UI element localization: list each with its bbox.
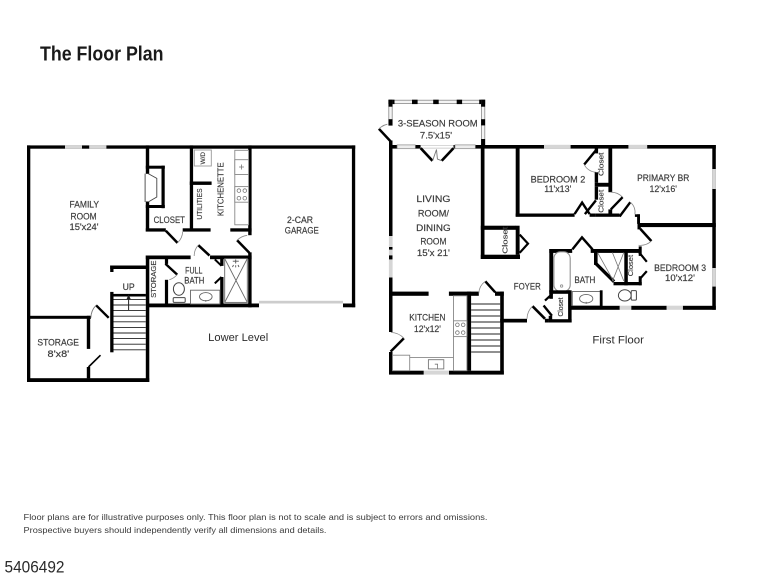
- svg-text:Closet: Closet: [596, 190, 605, 213]
- svg-text:FOYER: FOYER: [514, 281, 541, 291]
- svg-text:Closet: Closet: [626, 255, 635, 276]
- svg-text:ROOM: ROOM: [420, 236, 446, 246]
- svg-text:PRIMARY BR: PRIMARY BR: [637, 173, 689, 183]
- svg-text:DINING: DINING: [416, 223, 451, 233]
- svg-text:Closet: Closet: [556, 297, 565, 316]
- svg-text:ROOM: ROOM: [71, 211, 97, 221]
- svg-text:W/D: W/D: [200, 152, 207, 165]
- svg-text:STORAGE: STORAGE: [149, 260, 158, 298]
- svg-text:KITCHENETTE: KITCHENETTE: [217, 162, 226, 216]
- svg-text:Floor plans are for illustrati: Floor plans are for illustrative purpose…: [24, 512, 488, 522]
- svg-text:Closet: Closet: [596, 153, 605, 177]
- svg-text:The Floor Plan: The Floor Plan: [40, 44, 164, 66]
- svg-text:15'x24': 15'x24': [70, 222, 99, 232]
- svg-text:BATH: BATH: [184, 275, 204, 285]
- svg-text:2-CAR: 2-CAR: [287, 215, 313, 225]
- svg-text:First Floor: First Floor: [592, 335, 644, 347]
- svg-text:STORAGE: STORAGE: [37, 338, 79, 348]
- svg-text:8'x8': 8'x8': [48, 349, 70, 359]
- svg-text:FAMILY: FAMILY: [70, 199, 100, 209]
- svg-text:15'x 21': 15'x 21': [417, 248, 450, 258]
- svg-text:11'x13': 11'x13': [544, 184, 571, 194]
- svg-text:BEDROOM 2: BEDROOM 2: [531, 174, 586, 184]
- svg-text:LIVING: LIVING: [416, 194, 450, 204]
- svg-text:Closet: Closet: [500, 227, 509, 254]
- svg-text:UTILITIES: UTILITIES: [195, 188, 204, 219]
- svg-text:BATH: BATH: [574, 275, 595, 285]
- svg-text:CLOSET: CLOSET: [154, 215, 186, 225]
- svg-text:BEDROOM 3: BEDROOM 3: [654, 263, 706, 273]
- svg-text:GARAGE: GARAGE: [285, 225, 319, 235]
- svg-text:5406492: 5406492: [5, 559, 65, 576]
- svg-text:12'x12': 12'x12': [414, 324, 441, 334]
- svg-text:Prospective buyers should inde: Prospective buyers should independently …: [24, 525, 327, 535]
- svg-text:12'x16': 12'x16': [649, 184, 677, 194]
- svg-text:Lower Level: Lower Level: [208, 332, 268, 344]
- svg-text:ROOM/: ROOM/: [418, 208, 449, 218]
- svg-text:KITCHEN: KITCHEN: [409, 312, 445, 322]
- svg-text:10'x12': 10'x12': [665, 273, 695, 283]
- svg-text:3-SEASON ROOM: 3-SEASON ROOM: [398, 119, 478, 129]
- svg-text:FULL: FULL: [185, 265, 202, 275]
- svg-text:7.5'x15': 7.5'x15': [420, 130, 452, 140]
- svg-text:UP: UP: [123, 282, 135, 292]
